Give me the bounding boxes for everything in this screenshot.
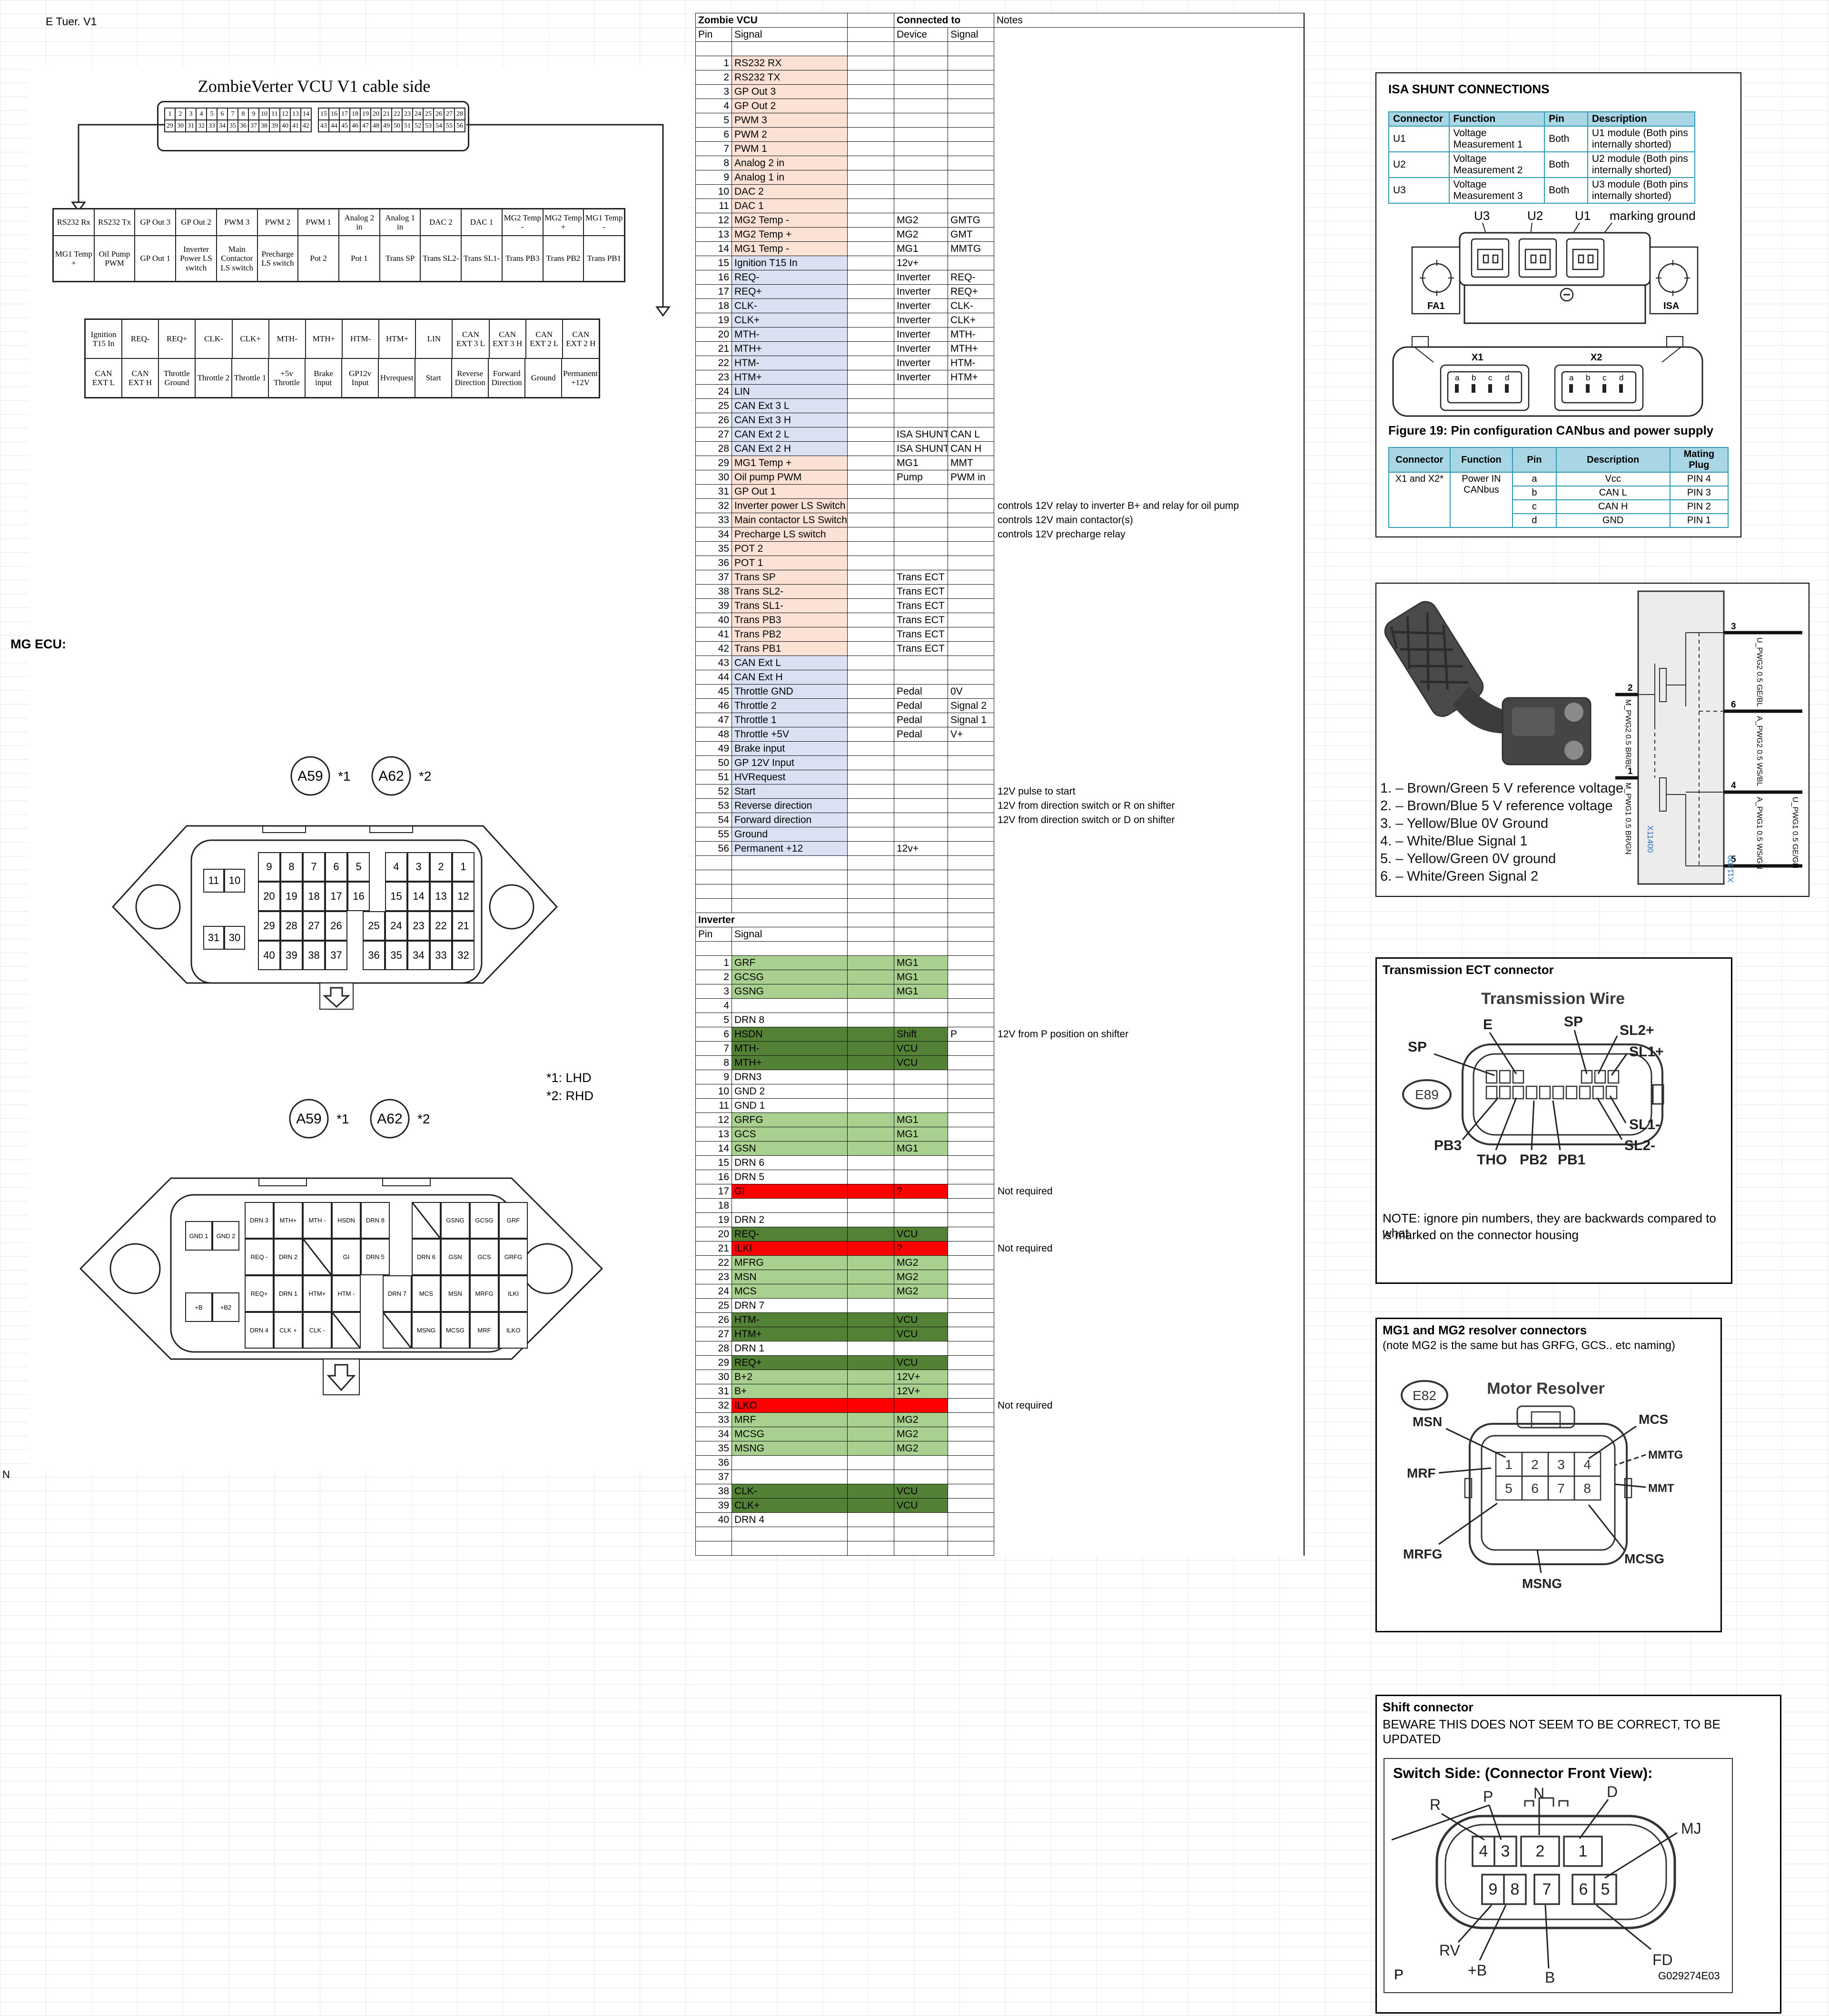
cable-table-cell[interactable]: Trans PB1 [583, 236, 624, 281]
vcu-device-signal-cell[interactable]: Signal 2 [948, 699, 994, 713]
vcu-signal-cell[interactable]: MTH- [732, 328, 848, 342]
inverter-pin-cell[interactable]: 22 [696, 1256, 732, 1270]
isa-cell[interactable]: Both [1544, 126, 1588, 152]
inverter-note-cell[interactable] [994, 1427, 1304, 1441]
vcu-pin-cell[interactable]: 40 [696, 613, 732, 627]
inverter-device-cell[interactable] [894, 1299, 948, 1313]
inverter-device-signal-cell[interactable] [948, 1270, 994, 1284]
inverter-blank-cell[interactable] [848, 1156, 894, 1170]
isa-cell[interactable]: Voltage Measurement 1 [1449, 126, 1545, 152]
vcu-note-cell[interactable] [994, 270, 1304, 285]
vcu-note-cell[interactable] [994, 599, 1304, 613]
vcu-signal-cell[interactable]: RS232 RX [732, 56, 848, 70]
vcu-device-cell[interactable]: Pedal [894, 727, 948, 742]
cable-table-cell[interactable]: MTH- [269, 319, 306, 358]
vcu-note-cell[interactable]: 12V pulse to start [994, 785, 1304, 799]
inverter-device-signal-cell[interactable] [948, 1470, 994, 1484]
inverter-pin-cell[interactable]: 10 [696, 1084, 732, 1099]
vcu-blank-cell[interactable] [848, 785, 894, 799]
empty-cell[interactable] [848, 870, 894, 884]
inverter-note-cell[interactable] [994, 1356, 1304, 1370]
inverter-signal-cell[interactable] [732, 999, 848, 1013]
inverter-device-signal-cell[interactable] [948, 1227, 994, 1241]
cable-table-cell[interactable]: Oil Pump PWM [94, 236, 135, 281]
vcu-pin-cell[interactable]: 16 [696, 270, 732, 285]
vcu-device-cell[interactable]: Trans ECT [894, 585, 948, 599]
inverter-device-signal-cell[interactable] [948, 1070, 994, 1084]
cable-table-cell[interactable]: Brake input [305, 358, 342, 397]
empty-cell[interactable] [848, 884, 894, 899]
empty-cell[interactable] [948, 42, 994, 56]
inverter-blank-cell[interactable] [848, 1227, 894, 1241]
inverter-signal-cell[interactable] [732, 1470, 848, 1484]
vcu-blank-cell[interactable] [848, 699, 894, 713]
inverter-device-signal-cell[interactable] [948, 1213, 994, 1227]
vcu-blank-cell[interactable] [848, 228, 894, 242]
cell[interactable] [994, 28, 1304, 42]
vcu-note-cell[interactable] [994, 142, 1304, 156]
can-cell[interactable]: PIN 2 [1670, 500, 1728, 514]
vcu-blank-cell[interactable] [848, 413, 894, 427]
corner-note[interactable]: E Tuer. V1 [46, 15, 97, 28]
inverter-device-signal-cell[interactable] [948, 1484, 994, 1499]
inverter-device-signal-cell[interactable]: P [948, 1027, 994, 1042]
inverter-device-cell[interactable]: MG1 [894, 1142, 948, 1156]
vcu-device-cell[interactable] [894, 527, 948, 542]
empty-cell[interactable] [732, 1527, 848, 1541]
vcu-device-cell[interactable] [894, 542, 948, 556]
vcu-signal-cell[interactable]: CLK- [732, 299, 848, 313]
vcu-blank-cell[interactable] [848, 370, 894, 385]
inverter-signal-cell[interactable]: B+ [732, 1384, 848, 1399]
cable-table-cell[interactable]: MG2 Temp + [543, 209, 584, 236]
vcu-device-signal-cell[interactable] [948, 670, 994, 685]
inverter-blank-cell[interactable] [848, 1270, 894, 1284]
vcu-blank-cell[interactable] [848, 313, 894, 328]
inverter-pin-cell[interactable]: 30 [696, 1370, 732, 1384]
cable-table-cell[interactable]: REQ+ [158, 319, 195, 358]
vcu-device-cell[interactable] [894, 756, 948, 770]
inverter-signal-cell[interactable]: MSNG [732, 1441, 848, 1456]
vcu-device-cell[interactable]: MG2 [894, 228, 948, 242]
vcu-note-cell[interactable] [994, 770, 1304, 785]
vcu-device-signal-cell[interactable]: REQ- [948, 270, 994, 285]
inverter-signal-cell[interactable]: CLK+ [732, 1499, 848, 1513]
inverter-blank-cell[interactable] [848, 1456, 894, 1470]
vcu-note-cell[interactable] [994, 827, 1304, 842]
vcu-note-cell[interactable]: 12V from direction switch or R on shifte… [994, 799, 1304, 813]
cable-table-cell[interactable]: Ignition T15 In [85, 319, 122, 358]
inverter-pin-cell[interactable]: 38 [696, 1484, 732, 1499]
vcu-signal-cell[interactable]: MG1 Temp + [732, 456, 848, 470]
vcu-signal-cell[interactable]: HTM+ [732, 370, 848, 385]
vcu-blank-cell[interactable] [848, 570, 894, 585]
cable-table-cell[interactable]: MG2 Temp - [502, 209, 543, 236]
vcu-pin-cell[interactable]: 26 [696, 413, 732, 427]
vcu-signal-cell[interactable]: REQ- [732, 270, 848, 285]
inverter-device-signal-cell[interactable] [948, 1327, 994, 1341]
vcu-device-signal-cell[interactable] [948, 613, 994, 627]
cable-table-cell[interactable]: GP12v Input [342, 358, 378, 397]
vcu-pin-cell[interactable]: 44 [696, 670, 732, 685]
inverter-device-cell[interactable] [894, 1170, 948, 1184]
cable-table-cell[interactable]: Reverse Direction [452, 358, 488, 397]
can-cell[interactable]: b [1513, 486, 1556, 500]
vcu-pin-cell[interactable]: 33 [696, 513, 732, 527]
isa-cell[interactable]: U3 [1389, 178, 1449, 203]
inverter-note-cell[interactable] [994, 1441, 1304, 1456]
vcu-note-cell[interactable] [994, 228, 1304, 242]
inverter-note-cell[interactable] [994, 1484, 1304, 1499]
inverter-note-cell[interactable] [994, 1113, 1304, 1127]
cell[interactable] [994, 913, 1304, 927]
inverter-signal-cell[interactable]: DRN 1 [732, 1341, 848, 1356]
vcu-blank-cell[interactable] [848, 842, 894, 856]
can-cell[interactable]: PIN 3 [1670, 486, 1728, 500]
vcu-pin-cell[interactable]: 35 [696, 542, 732, 556]
cable-table-cell[interactable]: Trans PB3 [502, 236, 543, 281]
vcu-device-cell[interactable]: 12v+ [894, 256, 948, 270]
empty-cell[interactable] [732, 942, 848, 956]
cable-table-cell[interactable]: Pot 2 [298, 236, 339, 281]
vcu-note-cell[interactable] [994, 185, 1304, 199]
inverter-device-cell[interactable]: ? [894, 1184, 948, 1199]
inverter-blank-cell[interactable] [848, 1327, 894, 1341]
inverter-device-signal-cell[interactable] [948, 1056, 994, 1070]
vcu-pin-cell[interactable]: 13 [696, 228, 732, 242]
inverter-blank-cell[interactable] [848, 1142, 894, 1156]
vcu-device-cell[interactable] [894, 499, 948, 513]
inverter-pin-cell[interactable]: 4 [696, 999, 732, 1013]
cell[interactable] [948, 913, 994, 927]
vcu-pin-cell[interactable]: 24 [696, 385, 732, 399]
cable-table-cell[interactable]: CLK+ [232, 319, 269, 358]
vcu-pin-cell[interactable]: 49 [696, 742, 732, 756]
vcu-note-cell[interactable] [994, 156, 1304, 170]
vcu-note-cell[interactable] [994, 442, 1304, 456]
vcu-signal-cell[interactable]: Forward direction [732, 813, 848, 827]
vcu-device-cell[interactable]: Trans ECT [894, 642, 948, 656]
notes-header[interactable]: Notes [994, 13, 1304, 28]
inverter-signal-cell[interactable]: ILKO [732, 1399, 848, 1413]
vcu-blank-cell[interactable] [848, 513, 894, 527]
vcu-blank-cell[interactable] [848, 270, 894, 285]
vcu-signal-cell[interactable]: Trans PB1 [732, 642, 848, 656]
inverter-device-signal-cell[interactable] [948, 1341, 994, 1356]
vcu-blank-cell[interactable] [848, 499, 894, 513]
inverter-blank-cell[interactable] [848, 1027, 894, 1042]
vcu-device-cell[interactable] [894, 670, 948, 685]
vcu-note-cell[interactable] [994, 699, 1304, 713]
inverter-device-signal-cell[interactable] [948, 1127, 994, 1142]
vcu-blank-cell[interactable] [848, 799, 894, 813]
inverter-pin-cell[interactable]: 27 [696, 1327, 732, 1341]
vcu-note-cell[interactable]: controls 12V precharge relay [994, 527, 1304, 542]
inverter-device-cell[interactable]: MG2 [894, 1427, 948, 1441]
inverter-pin-cell[interactable]: 3 [696, 984, 732, 999]
vcu-blank-cell[interactable] [848, 542, 894, 556]
cable-table-cell[interactable]: CAN EXT 3 L [452, 319, 489, 358]
vcu-signal-cell[interactable]: Analog 2 in [732, 156, 848, 170]
can-function-cell[interactable]: Power IN CANbus [1450, 472, 1513, 527]
inverter-note-cell[interactable] [994, 1299, 1304, 1313]
vcu-signal-cell[interactable]: Inverter power LS Switch [732, 499, 848, 513]
vcu-blank-cell[interactable] [848, 399, 894, 413]
empty-cell[interactable] [696, 870, 732, 884]
cable-table-cell[interactable]: HTM- [342, 319, 379, 358]
vcu-signal-cell[interactable]: Throttle GND [732, 685, 848, 699]
can-cell[interactable]: c [1513, 500, 1556, 514]
vcu-signal-cell[interactable]: MG2 Temp + [732, 228, 848, 242]
vcu-blank-cell[interactable] [848, 142, 894, 156]
cell[interactable] [994, 927, 1304, 942]
isa-cell[interactable]: U2 [1389, 152, 1449, 178]
inverter-note-cell[interactable] [994, 1384, 1304, 1399]
cable-table-cell[interactable]: DAC 1 [461, 209, 502, 236]
vcu-device-signal-cell[interactable]: CLK+ [948, 313, 994, 328]
can-cell[interactable]: GND [1556, 514, 1670, 527]
inverter-signal-cell[interactable] [732, 1456, 848, 1470]
vcu-pin-cell[interactable]: 54 [696, 813, 732, 827]
inverter-note-cell[interactable] [994, 1470, 1304, 1484]
isa-cell[interactable]: Both [1544, 152, 1588, 178]
vcu-note-cell[interactable] [994, 585, 1304, 599]
vcu-blank-cell[interactable] [848, 599, 894, 613]
inverter-blank-cell[interactable] [848, 1313, 894, 1327]
cable-table-cell[interactable]: Start [415, 358, 452, 397]
vcu-device-signal-cell[interactable] [948, 842, 994, 856]
cable-table-cell[interactable]: +5v Throttle [268, 358, 305, 397]
vcu-note-cell[interactable]: controls 12V main contactor(s) [994, 513, 1304, 527]
vcu-device-cell[interactable] [894, 56, 948, 70]
vcu-device-signal-cell[interactable] [948, 256, 994, 270]
vcu-device-cell[interactable] [894, 199, 948, 213]
inverter-device-cell[interactable] [894, 1070, 948, 1084]
empty-cell[interactable] [894, 1527, 948, 1541]
vcu-signal-cell[interactable]: MG1 Temp - [732, 242, 848, 256]
vcu-pin-cell[interactable]: 32 [696, 499, 732, 513]
vcu-pin-cell[interactable]: 25 [696, 399, 732, 413]
inverter-note-cell[interactable] [994, 1170, 1304, 1184]
vcu-signal-cell[interactable]: Ignition T15 In [732, 256, 848, 270]
vcu-pin-cell[interactable]: 7 [696, 142, 732, 156]
cell[interactable] [848, 913, 894, 927]
inverter-device-signal-cell[interactable] [948, 1441, 994, 1456]
vcu-note-cell[interactable] [994, 642, 1304, 656]
vcu-blank-cell[interactable] [848, 342, 894, 356]
cable-table-cell[interactable]: PWM 1 [298, 209, 339, 236]
cable-table-cell[interactable]: Permanent +12V [562, 358, 599, 397]
inverter-device-signal-cell[interactable] [948, 1456, 994, 1470]
inverter-device-cell[interactable] [894, 1456, 948, 1470]
vcu-signal-cell[interactable]: POT 1 [732, 556, 848, 570]
inverter-device-cell[interactable]: MG2 [894, 1270, 948, 1284]
cell[interactable] [848, 28, 894, 42]
vcu-note-cell[interactable] [994, 727, 1304, 742]
vcu-blank-cell[interactable] [848, 685, 894, 699]
inverter-table-title[interactable]: Inverter [696, 913, 848, 927]
vcu-device-signal-cell[interactable] [948, 199, 994, 213]
vcu-pin-cell[interactable]: 41 [696, 627, 732, 642]
vcu-device-signal-cell[interactable]: Signal 1 [948, 713, 994, 727]
vcu-device-cell[interactable] [894, 556, 948, 570]
vcu-signal-cell[interactable]: LIN [732, 385, 848, 399]
inverter-pin-cell[interactable]: 33 [696, 1413, 732, 1427]
empty-cell[interactable] [848, 1541, 894, 1556]
vcu-blank-cell[interactable] [848, 128, 894, 142]
vcu-device-signal-cell[interactable] [948, 56, 994, 70]
inverter-pin-cell[interactable]: 5 [696, 1013, 732, 1027]
inverter-device-cell[interactable]: MG2 [894, 1284, 948, 1299]
pin-header[interactable]: Pin [696, 28, 732, 42]
inverter-blank-cell[interactable] [848, 1170, 894, 1184]
vcu-device-cell[interactable]: Inverter [894, 270, 948, 285]
inverter-device-signal-cell[interactable] [948, 1184, 994, 1199]
inverter-device-signal-cell[interactable] [948, 1013, 994, 1027]
vcu-signal-cell[interactable]: Start [732, 785, 848, 799]
inverter-pin-cell[interactable]: 16 [696, 1170, 732, 1184]
vcu-blank-cell[interactable] [848, 627, 894, 642]
vcu-pin-cell[interactable]: 22 [696, 356, 732, 370]
inverter-signal-cell[interactable]: MRF [732, 1413, 848, 1427]
vcu-signal-cell[interactable]: Trans PB3 [732, 613, 848, 627]
vcu-blank-cell[interactable] [848, 585, 894, 599]
vcu-signal-cell[interactable]: CAN Ext H [732, 670, 848, 685]
inverter-blank-cell[interactable] [848, 1413, 894, 1427]
vcu-device-cell[interactable] [894, 385, 948, 399]
vcu-device-signal-cell[interactable] [948, 485, 994, 499]
vcu-device-signal-cell[interactable]: MTH+ [948, 342, 994, 356]
vcu-signal-cell[interactable]: Analog 1 in [732, 170, 848, 185]
vcu-pin-cell[interactable]: 31 [696, 485, 732, 499]
empty-cell[interactable] [732, 856, 848, 870]
inverter-device-signal-cell[interactable] [948, 1042, 994, 1056]
vcu-pin-cell[interactable]: 27 [696, 427, 732, 442]
inverter-device-cell[interactable]: VCU [894, 1499, 948, 1513]
vcu-pin-cell[interactable]: 3 [696, 85, 732, 99]
vcu-pin-cell[interactable]: 55 [696, 827, 732, 842]
inverter-blank-cell[interactable] [848, 1042, 894, 1056]
cable-table-cell[interactable]: MG1 Temp + [53, 236, 94, 281]
inverter-device-cell[interactable] [894, 1099, 948, 1113]
vcu-device-cell[interactable]: MG1 [894, 456, 948, 470]
cable-table-cell[interactable]: Inverter Power LS switch [176, 236, 217, 281]
inverter-device-cell[interactable]: MG1 [894, 984, 948, 999]
inverter-device-signal-cell[interactable] [948, 1299, 994, 1313]
inverter-note-cell[interactable]: Not required [994, 1184, 1304, 1199]
can-connector-cell[interactable]: X1 and X2* [1389, 472, 1450, 527]
inverter-signal-cell[interactable]: REQ+ [732, 1356, 848, 1370]
vcu-device-cell[interactable]: Inverter [894, 356, 948, 370]
vcu-signal-cell[interactable]: MG2 Temp - [732, 213, 848, 228]
vcu-pin-cell[interactable]: 19 [696, 313, 732, 328]
empty-cell[interactable] [948, 942, 994, 956]
cell[interactable] [948, 927, 994, 942]
vcu-blank-cell[interactable] [848, 156, 894, 170]
inverter-device-signal-cell[interactable] [948, 970, 994, 984]
inverter-pin-cell[interactable]: 25 [696, 1299, 732, 1313]
inverter-signal-cell[interactable]: B+2 [732, 1370, 848, 1384]
inverter-note-cell[interactable] [994, 1499, 1304, 1513]
vcu-device-signal-cell[interactable] [948, 142, 994, 156]
vcu-device-cell[interactable] [894, 99, 948, 113]
vcu-note-cell[interactable] [994, 199, 1304, 213]
inverter-device-signal-cell[interactable] [948, 1313, 994, 1327]
vcu-note-cell[interactable] [994, 299, 1304, 313]
inverter-signal-cell[interactable]: REQ- [732, 1227, 848, 1241]
vcu-pin-cell[interactable]: 48 [696, 727, 732, 742]
cable-table-cell[interactable]: GP Out 1 [135, 236, 176, 281]
empty-cell[interactable] [732, 1541, 848, 1556]
cable-table-cell[interactable]: Hvrequest [378, 358, 415, 397]
cable-table-cell[interactable]: PWM 2 [257, 209, 298, 236]
vcu-note-cell[interactable] [994, 542, 1304, 556]
cell[interactable] [894, 913, 948, 927]
vcu-blank-cell[interactable] [848, 642, 894, 656]
vcu-device-cell[interactable] [894, 413, 948, 427]
vcu-device-cell[interactable]: Trans ECT [894, 570, 948, 585]
can-cell[interactable]: PIN 1 [1670, 514, 1728, 527]
empty-cell[interactable] [894, 856, 948, 870]
vcu-note-cell[interactable] [994, 556, 1304, 570]
inverter-device-signal-cell[interactable] [948, 1256, 994, 1270]
vcu-device-signal-cell[interactable] [948, 385, 994, 399]
inverter-device-cell[interactable]: VCU [894, 1356, 948, 1370]
vcu-device-cell[interactable] [894, 170, 948, 185]
vcu-device-cell[interactable]: Inverter [894, 328, 948, 342]
vcu-signal-cell[interactable]: GP 12V Input [732, 756, 848, 770]
vcu-pin-cell[interactable]: 5 [696, 113, 732, 128]
inverter-note-cell[interactable] [994, 984, 1304, 999]
empty-cell[interactable] [696, 899, 732, 913]
empty-cell[interactable] [948, 1527, 994, 1541]
vcu-pin-cell[interactable]: 11 [696, 199, 732, 213]
empty-cell[interactable] [894, 942, 948, 956]
inverter-blank-cell[interactable] [848, 1470, 894, 1484]
inverter-signal-cell[interactable] [732, 1199, 848, 1213]
inverter-pin-cell[interactable]: 36 [696, 1456, 732, 1470]
inverter-pin-cell[interactable]: 18 [696, 1199, 732, 1213]
inverter-signal-cell[interactable]: GRF [732, 956, 848, 970]
vcu-device-cell[interactable]: ISA SHUNT [894, 427, 948, 442]
empty-cell[interactable] [848, 856, 894, 870]
cable-table-cell[interactable]: MG1 Temp - [583, 209, 624, 236]
inverter-blank-cell[interactable] [848, 1427, 894, 1441]
vcu-pin-cell[interactable]: 15 [696, 256, 732, 270]
vcu-signal-cell[interactable]: GP Out 2 [732, 99, 848, 113]
vcu-device-signal-cell[interactable]: GMTG [948, 213, 994, 228]
inverter-pin-cell[interactable]: 37 [696, 1470, 732, 1484]
isa-cell[interactable]: Voltage Measurement 2 [1449, 152, 1545, 178]
inverter-note-cell[interactable] [994, 1013, 1304, 1027]
cable-table-cell[interactable]: Throttle 2 [195, 358, 232, 397]
vcu-signal-cell[interactable]: CAN Ext 3 L [732, 399, 848, 413]
vcu-device-cell[interactable] [894, 513, 948, 527]
vcu-device-cell[interactable] [894, 399, 948, 413]
vcu-blank-cell[interactable] [848, 713, 894, 727]
vcu-device-signal-cell[interactable] [948, 656, 994, 670]
empty-cell[interactable] [894, 899, 948, 913]
vcu-device-signal-cell[interactable] [948, 599, 994, 613]
inverter-device-cell[interactable]: ? [894, 1241, 948, 1256]
vcu-note-cell[interactable] [994, 370, 1304, 385]
cable-table-cell[interactable]: CAN EXT H [122, 358, 158, 397]
inverter-device-cell[interactable] [894, 1470, 948, 1484]
inverter-pin-cell[interactable]: 31 [696, 1384, 732, 1399]
vcu-pin-cell[interactable]: 39 [696, 599, 732, 613]
cable-table-cell[interactable]: CAN EXT L [85, 358, 122, 397]
inverter-note-cell[interactable] [994, 1084, 1304, 1099]
